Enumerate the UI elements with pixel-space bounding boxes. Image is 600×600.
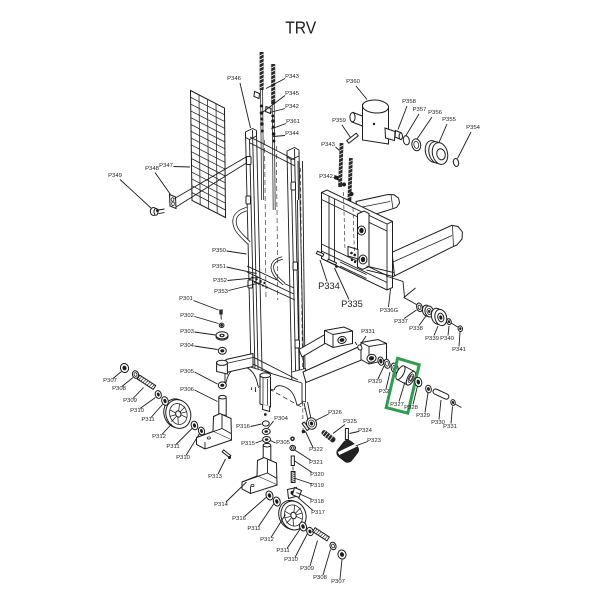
svg-text:P324: P324 (358, 428, 372, 434)
svg-text:P331: P331 (361, 329, 375, 335)
svg-text:P327: P327 (390, 402, 404, 408)
svg-text:P315: P315 (241, 441, 255, 447)
svg-text:P339: P339 (425, 336, 439, 342)
svg-text:P301: P301 (179, 296, 193, 302)
svg-text:P305: P305 (276, 440, 290, 446)
svg-text:P314: P314 (214, 502, 228, 508)
svg-text:P336G: P336G (380, 308, 399, 314)
svg-text:P319: P319 (310, 483, 324, 489)
svg-text:P344: P344 (285, 131, 299, 137)
svg-text:P360: P360 (346, 79, 360, 85)
svg-text:P353: P353 (214, 289, 228, 295)
svg-text:P345: P345 (285, 91, 299, 97)
svg-text:P350: P350 (212, 248, 226, 254)
svg-text:P351: P351 (212, 264, 226, 270)
svg-text:P321: P321 (309, 460, 323, 466)
svg-text:P318: P318 (310, 499, 324, 505)
svg-text:P326: P326 (328, 410, 342, 416)
svg-text:P323: P323 (367, 438, 381, 444)
svg-text:P316: P316 (236, 424, 250, 430)
svg-text:P342: P342 (285, 104, 299, 110)
svg-text:P306: P306 (180, 387, 194, 393)
svg-text:P304: P304 (180, 343, 194, 349)
svg-text:P322: P322 (309, 447, 323, 453)
svg-text:P32: P32 (379, 389, 389, 395)
svg-text:P308: P308 (112, 386, 126, 392)
svg-text:P302: P302 (180, 313, 194, 319)
svg-text:P348: P348 (145, 166, 159, 172)
svg-text:P311: P311 (247, 526, 260, 532)
svg-text:P304: P304 (274, 416, 288, 422)
svg-text:P307: P307 (331, 579, 345, 585)
svg-text:P335: P335 (341, 299, 363, 309)
svg-text:P325: P325 (343, 419, 357, 425)
svg-text:P331: P331 (443, 424, 457, 430)
svg-text:P311: P311 (141, 417, 154, 423)
svg-text:P309: P309 (123, 398, 137, 404)
svg-text:P354: P354 (466, 125, 480, 131)
svg-text:P310: P310 (284, 557, 298, 563)
svg-text:P309: P309 (300, 566, 314, 572)
svg-text:P337: P337 (394, 319, 408, 325)
svg-text:P343: P343 (285, 74, 299, 80)
svg-text:P341: P341 (452, 347, 466, 353)
svg-text:P349: P349 (108, 173, 122, 179)
svg-text:P359: P359 (332, 118, 346, 124)
svg-text:P317: P317 (311, 510, 325, 516)
svg-text:P312: P312 (152, 434, 166, 440)
svg-text:P361: P361 (286, 119, 300, 125)
svg-text:P310: P310 (130, 408, 144, 414)
svg-text:P342: P342 (319, 174, 333, 180)
svg-text:P338: P338 (409, 326, 423, 332)
svg-text:P358: P358 (402, 99, 416, 105)
svg-text:P355: P355 (442, 117, 456, 123)
svg-text:P346: P346 (227, 76, 241, 82)
svg-text:P343: P343 (321, 142, 335, 148)
svg-text:P316: P316 (232, 516, 246, 522)
svg-text:P340: P340 (440, 336, 454, 342)
svg-text:P313: P313 (208, 474, 222, 480)
svg-text:TRV: TRV (285, 18, 316, 38)
svg-text:P357: P357 (413, 107, 427, 113)
svg-text:P352: P352 (213, 278, 227, 284)
svg-text:P347: P347 (159, 163, 173, 169)
svg-text:P308: P308 (313, 575, 327, 581)
svg-text:P311: P311 (276, 548, 289, 554)
svg-text:P329: P329 (368, 379, 382, 385)
svg-text:P356: P356 (428, 110, 442, 116)
svg-text:P334: P334 (318, 281, 340, 291)
svg-text:P305: P305 (180, 369, 194, 375)
svg-text:P329: P329 (416, 413, 430, 419)
svg-text:P328: P328 (404, 405, 418, 411)
svg-text:P320: P320 (310, 472, 324, 478)
svg-text:P303: P303 (180, 329, 194, 335)
svg-text:P310: P310 (176, 455, 190, 461)
svg-text:P312: P312 (260, 537, 274, 543)
svg-text:P311: P311 (166, 444, 179, 450)
svg-text:P307: P307 (103, 378, 117, 384)
